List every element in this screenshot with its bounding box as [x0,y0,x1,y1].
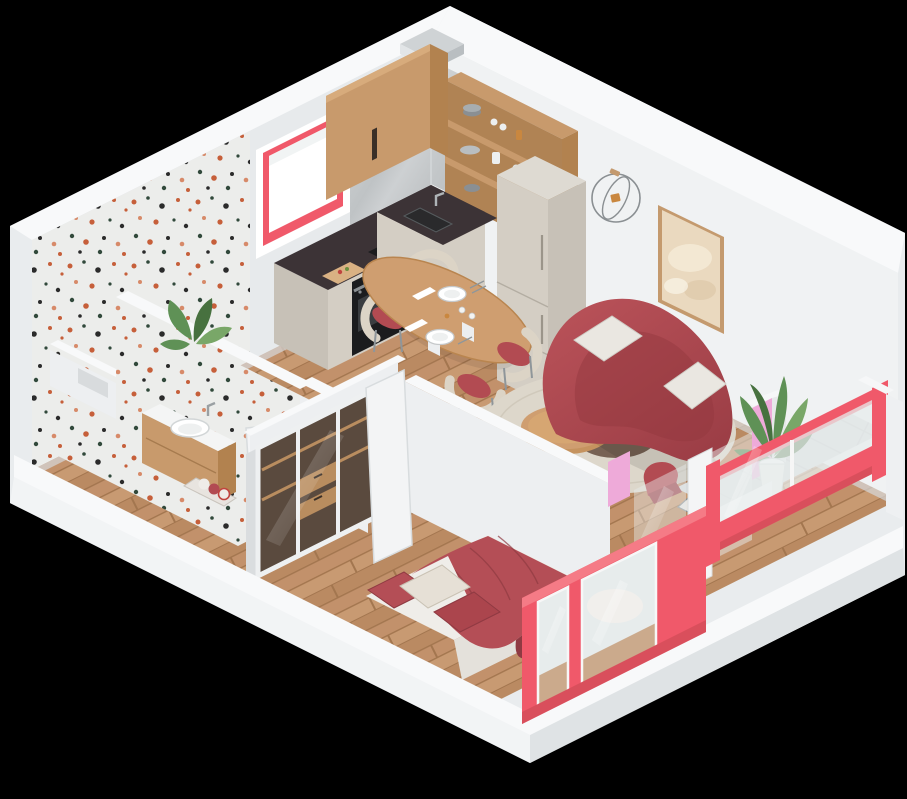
pot [464,184,480,192]
bowl [460,146,480,155]
balustrade-post [706,459,720,567]
candle [445,314,450,319]
basin-inner [178,424,202,435]
art-texture [664,278,688,294]
food [345,267,349,271]
cup [500,124,507,131]
pot [463,104,481,112]
e-wall-cap [886,394,903,520]
towel-roll [219,489,230,500]
isometric-scene [0,0,907,799]
cabinet-handle [372,128,377,161]
art-texture [684,280,716,300]
food [338,270,342,274]
oven-dial [358,290,361,293]
cup [491,119,498,126]
towel-roll [199,479,210,490]
cup [459,307,465,313]
jar [516,130,522,140]
plate-inner [432,333,448,341]
plate-inner [444,290,460,298]
art-texture [668,244,712,272]
pitcher [492,152,500,164]
balustrade-post [872,380,888,482]
cup [469,313,475,319]
apartment-render [0,0,907,799]
cabinet-side [430,44,448,157]
bedroom-door [366,370,412,563]
